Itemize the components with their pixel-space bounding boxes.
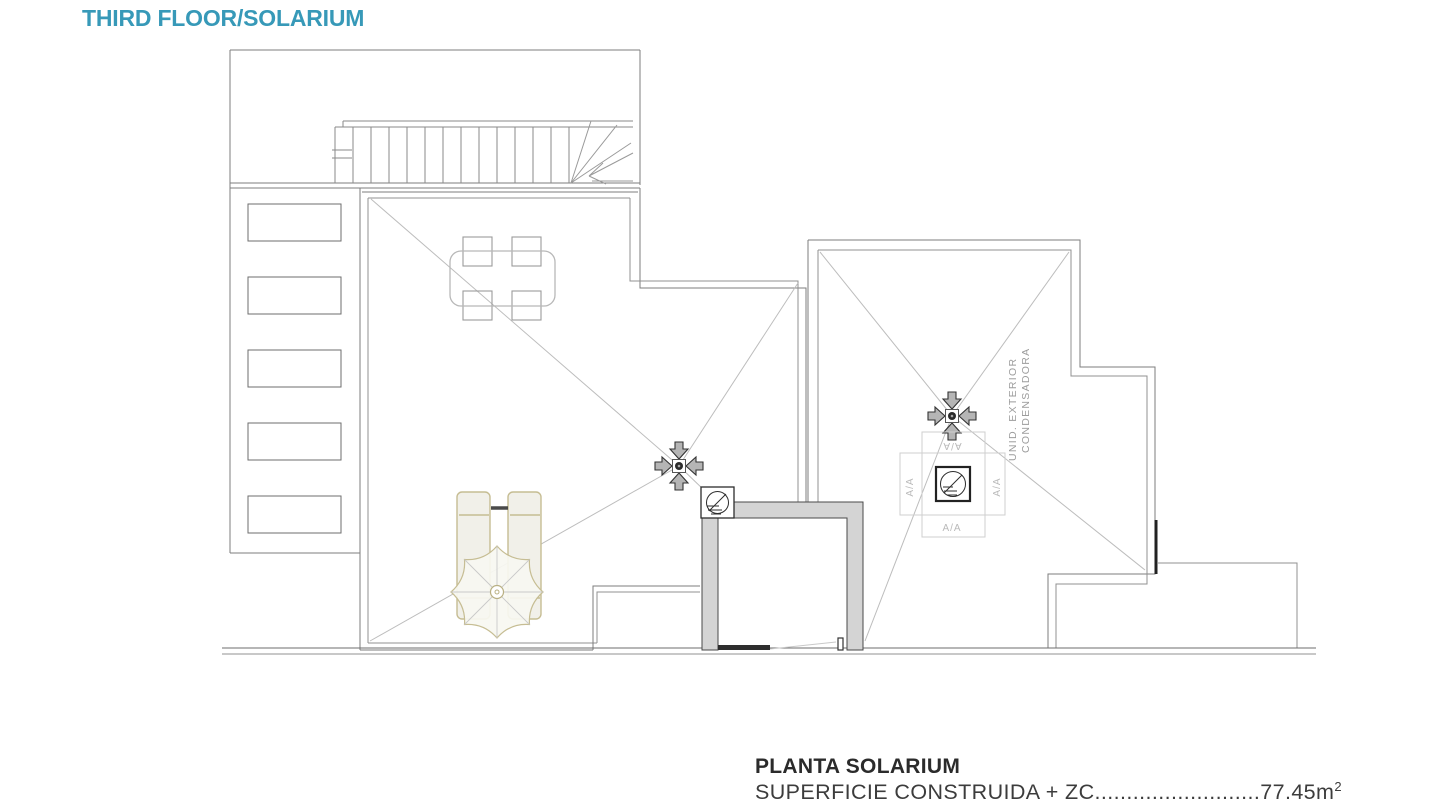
- louver-panel: [248, 204, 341, 241]
- elevator-shaft: [701, 487, 863, 650]
- dining-table: [450, 251, 555, 306]
- caption-area-line: SUPERFICIE CONSTRUIDA + ZC..............…: [755, 780, 1342, 805]
- louver-panel: [248, 423, 341, 460]
- dining-set: [450, 237, 555, 320]
- left-terrace-walls: [360, 188, 806, 650]
- vent-pipe-icon: [701, 487, 734, 518]
- louver-panel: [248, 350, 341, 387]
- ac-zone-label-left: A/A: [905, 477, 916, 496]
- louver-panel: [248, 277, 341, 314]
- plan-caption: PLANTA SOLARIUM SUPERFICIE CONSTRUIDA + …: [755, 755, 1342, 805]
- sun-lounger-area: [451, 492, 543, 638]
- staircase: [332, 121, 633, 184]
- caption-area-label: SUPERFICIE CONSTRUIDA + ZC: [755, 780, 1095, 804]
- elevator-door-stop: [838, 638, 843, 650]
- roof-drain-icon: [928, 392, 976, 440]
- floor-plan-drawing: A/A A/A A/A A/A UNID. EXTERIOR CONDENSAD…: [0, 0, 1440, 800]
- ac-zone-label-top: A/A: [942, 440, 961, 451]
- caption-area-dots: ..........................: [1095, 780, 1261, 804]
- ac-condenser-unit-icon: [936, 467, 970, 501]
- caption-plan-name: PLANTA SOLARIUM: [755, 755, 1342, 779]
- stair-direction-arrow: [571, 121, 633, 184]
- caption-area-value: 77.45m: [1260, 780, 1334, 804]
- stair-hall: [230, 50, 640, 553]
- ac-zone-label-right: A/A: [992, 477, 1003, 496]
- louver-panel: [248, 496, 341, 533]
- caption-area-superscript: 2: [1334, 779, 1342, 794]
- ac-zone-label-bottom: A/A: [942, 523, 961, 534]
- lower-roof-terrace: [1158, 563, 1297, 648]
- condenser-note-line1: UNID. EXTERIOR: [1007, 358, 1019, 461]
- condenser-note-line2: CONDENSADORA: [1020, 348, 1032, 453]
- louver-strip: [230, 204, 360, 553]
- elevator-door-sill: [718, 645, 770, 650]
- parasol-umbrella: [451, 546, 543, 638]
